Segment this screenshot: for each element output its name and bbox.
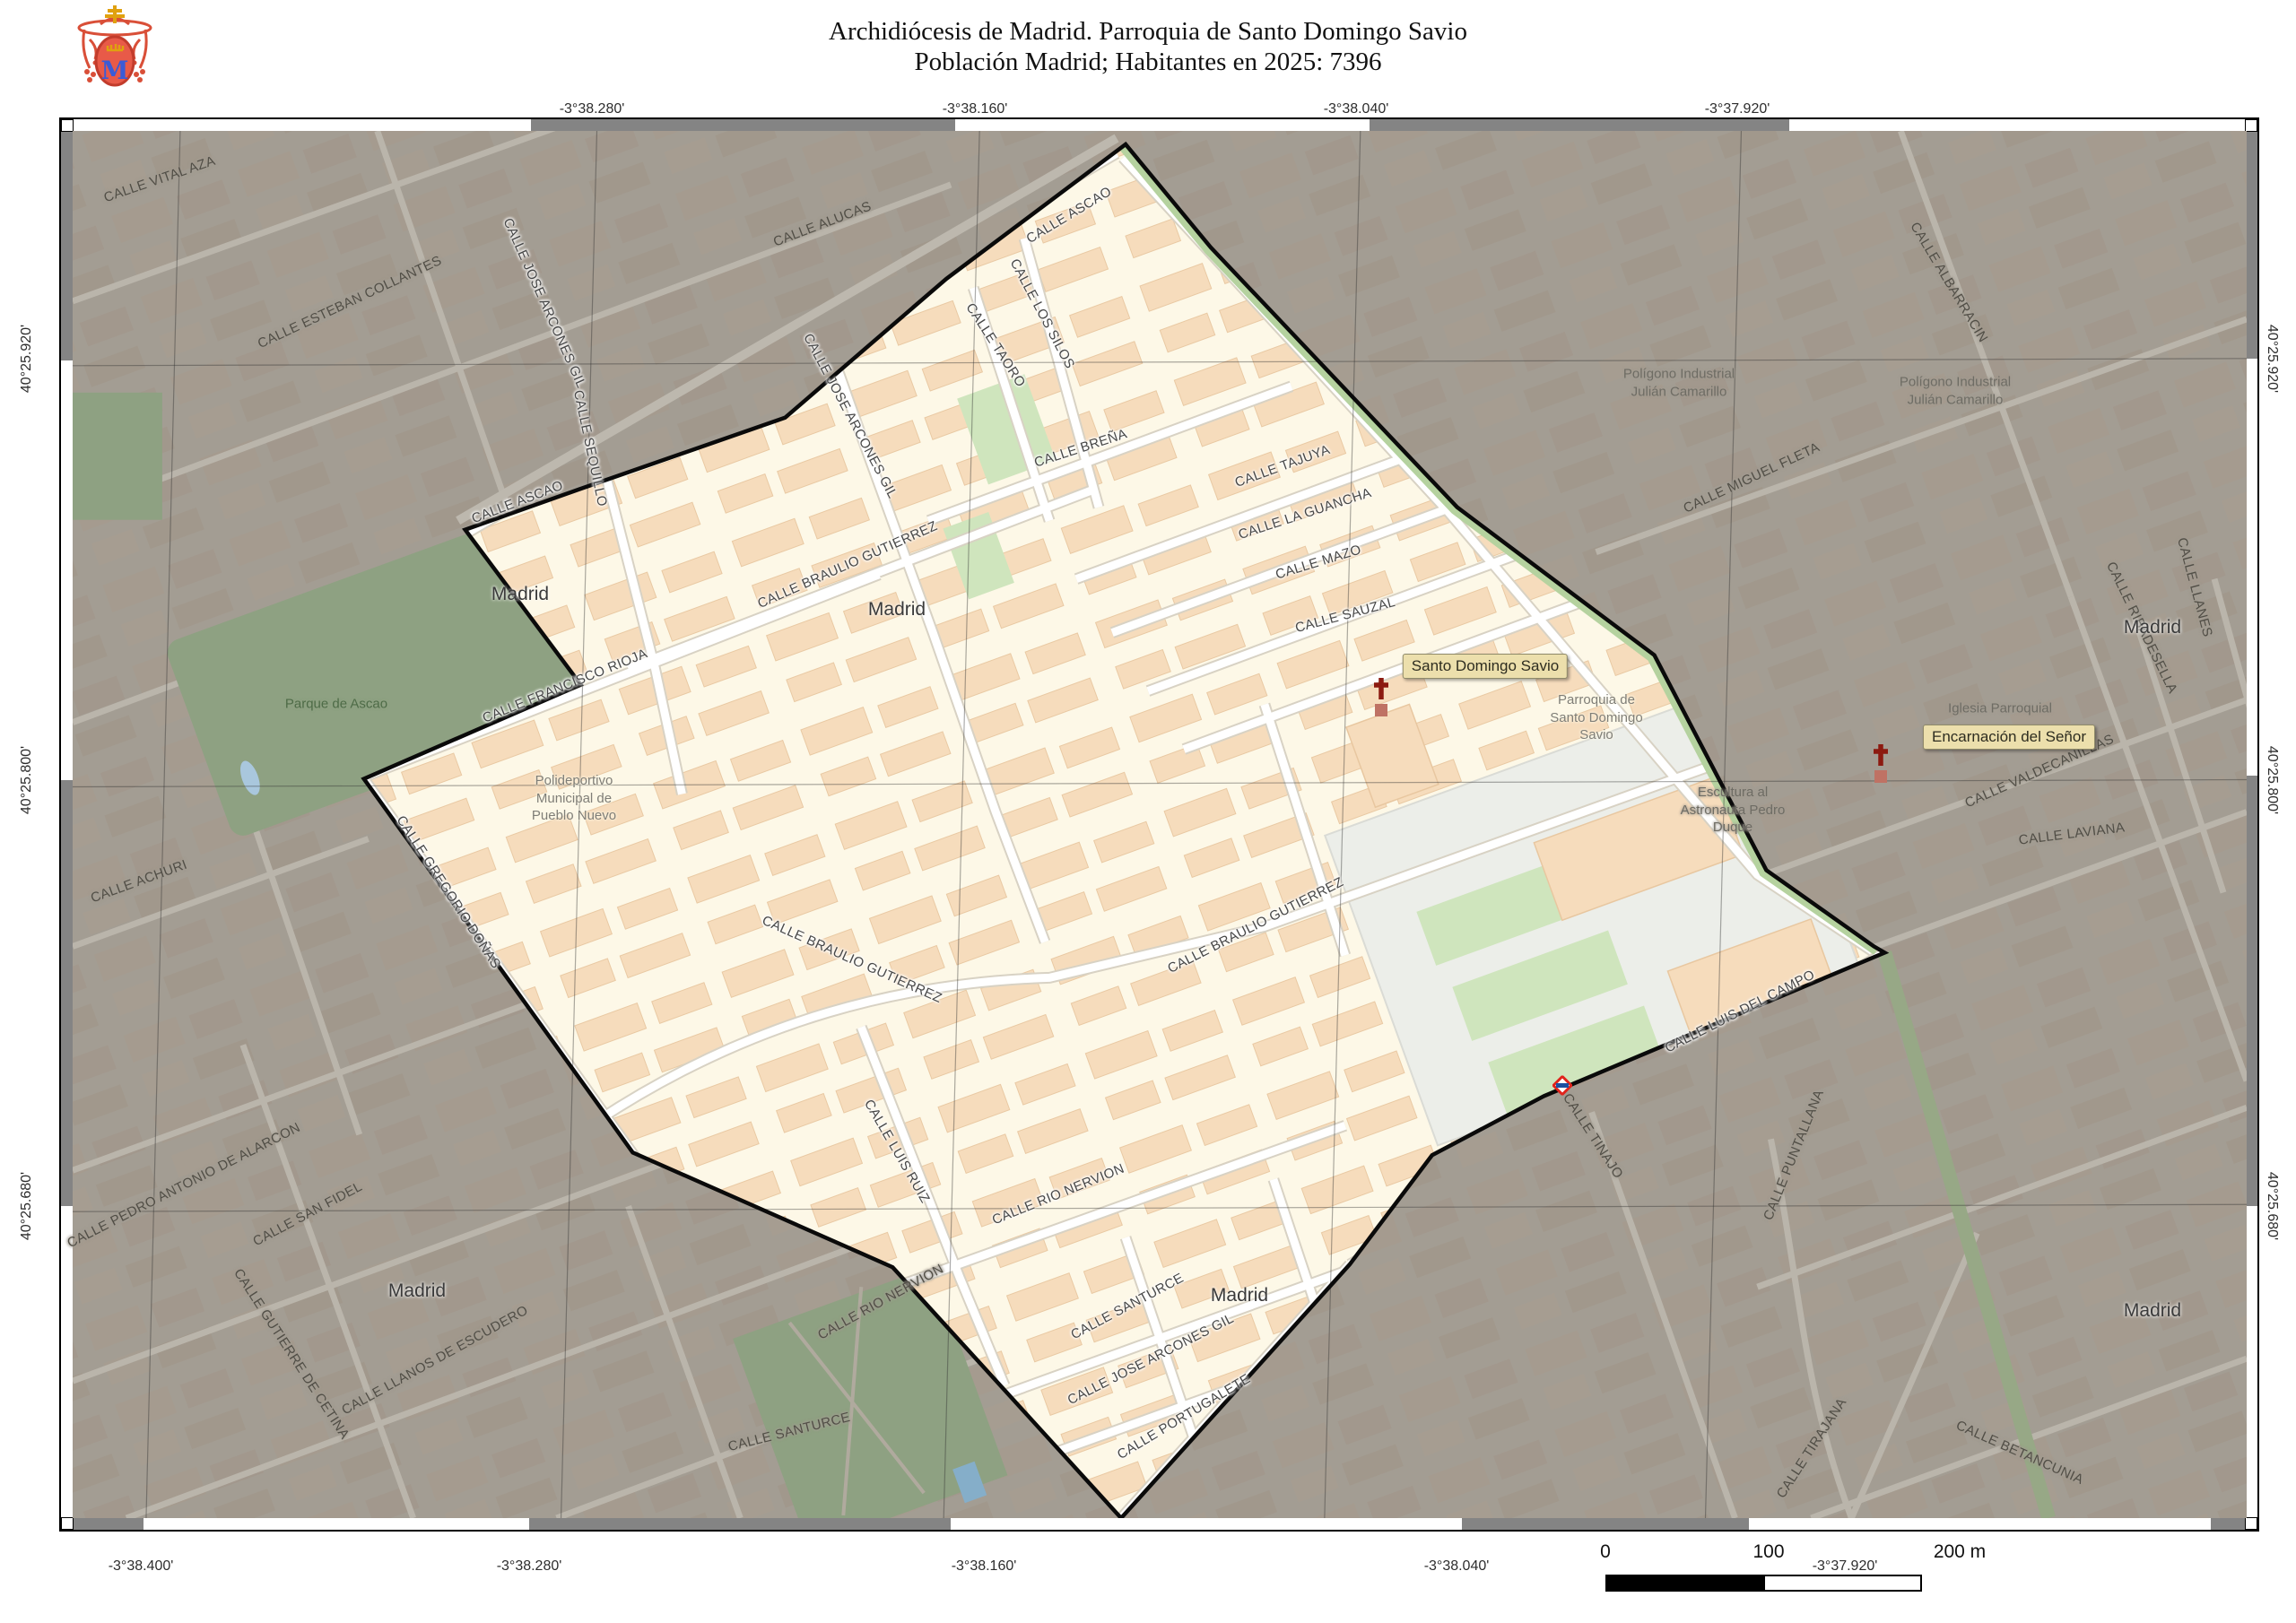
church-label: Santo Domingo Savio bbox=[1403, 654, 1568, 679]
place-label: Iglesia Parroquial bbox=[1948, 699, 2052, 717]
city-label: Madrid bbox=[491, 584, 549, 605]
city-label: Madrid bbox=[2124, 1300, 2181, 1322]
title-line-2: Población Madrid; Habitantes en 2025: 73… bbox=[0, 47, 2296, 77]
archdiocese-crest-logo: M bbox=[75, 4, 154, 88]
title-line-1: Archidiócesis de Madrid. Parroquia de Sa… bbox=[0, 16, 2296, 47]
frame-corner bbox=[61, 1517, 74, 1530]
city-label: Madrid bbox=[868, 599, 926, 621]
frame-zebra-right bbox=[2245, 131, 2257, 1518]
scale-label-200m: 200 m bbox=[1934, 1541, 1986, 1563]
place-label: Polígono IndustrialJulián Camarillo bbox=[1623, 366, 1735, 401]
scale-bar bbox=[1605, 1575, 1922, 1592]
place-label: Polígono IndustrialJulián Camarillo bbox=[1900, 374, 2011, 409]
place-label: Parroquia deSanto DomingoSavio bbox=[1550, 691, 1642, 744]
longitude-tick-label: -3°38.040' bbox=[1324, 101, 1389, 117]
longitude-tick-label: -3°38.280' bbox=[497, 1558, 562, 1575]
longitude-tick-label: -3°37.920' bbox=[1813, 1558, 1878, 1575]
place-label: Escultura alAstronauta PedroDuque bbox=[1681, 784, 1786, 837]
latitude-tick-label: 40°25.920' bbox=[19, 325, 35, 393]
frame-zebra-bottom bbox=[73, 1517, 2246, 1530]
latitude-tick-label: 40°25.680' bbox=[2264, 1172, 2280, 1240]
church-icon bbox=[1371, 676, 1391, 724]
longitude-tick-label: -3°38.160' bbox=[952, 1558, 1017, 1575]
frame-zebra-left bbox=[61, 131, 74, 1518]
latitude-tick-label: 40°25.680' bbox=[19, 1172, 35, 1240]
page-title: Archidiócesis de Madrid. Parroquia de Sa… bbox=[0, 16, 2296, 77]
place-label: Parque de Ascao bbox=[285, 695, 387, 713]
longitude-tick-label: -3°38.280' bbox=[560, 101, 625, 117]
church-icon bbox=[1871, 742, 1891, 790]
frame-corner bbox=[61, 119, 74, 132]
city-label: Madrid bbox=[2124, 617, 2181, 638]
place-label: PolideportivoMunicipal dePueblo Nuevo bbox=[532, 772, 616, 825]
scale-label-100: 100 bbox=[1752, 1541, 1784, 1563]
frame-corner bbox=[2245, 1517, 2257, 1530]
city-label: Madrid bbox=[1211, 1285, 1268, 1306]
church-label: Encarnación del Señor bbox=[1923, 725, 2095, 750]
frame-zebra-top bbox=[73, 119, 2246, 132]
svg-text:M: M bbox=[101, 56, 129, 85]
latitude-tick-label: 40°25.800' bbox=[2264, 746, 2280, 814]
longitude-tick-label: -3°37.920' bbox=[1705, 101, 1770, 117]
city-label: Madrid bbox=[388, 1280, 446, 1302]
longitude-tick-label: -3°38.400' bbox=[109, 1558, 174, 1575]
longitude-tick-label: -3°38.160' bbox=[943, 101, 1008, 117]
latitude-tick-label: 40°25.920' bbox=[2264, 325, 2280, 393]
scale-label-0: 0 bbox=[1600, 1541, 1611, 1563]
frame-corner bbox=[2245, 119, 2257, 132]
map-document: Archidiócesis de Madrid. Parroquia de Sa… bbox=[0, 0, 2296, 1623]
longitude-tick-label: -3°38.040' bbox=[1424, 1558, 1490, 1575]
metro-icon bbox=[1552, 1076, 1572, 1100]
latitude-tick-label: 40°25.800' bbox=[19, 746, 35, 814]
